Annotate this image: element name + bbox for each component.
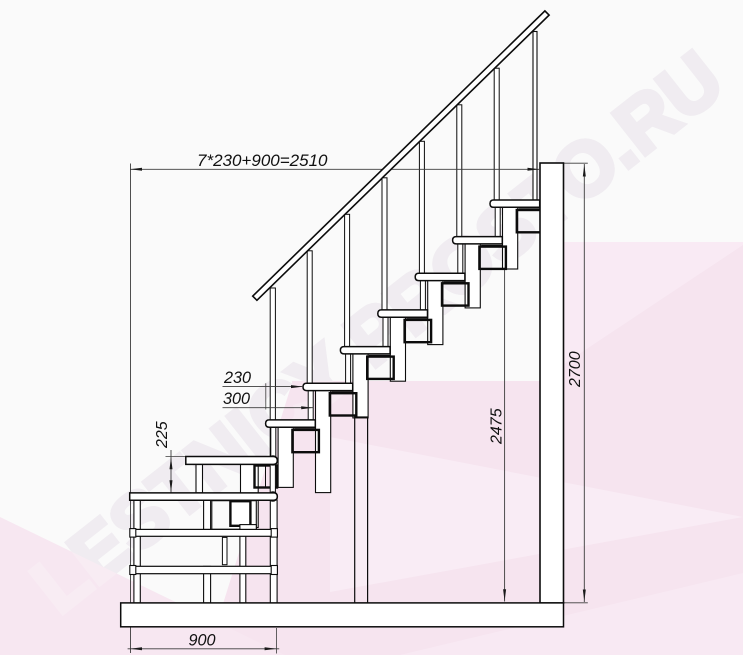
svg-text:300: 300 [223,390,250,408]
svg-text:230: 230 [223,369,251,387]
svg-text:2700: 2700 [567,351,584,388]
svg-text:2475: 2475 [489,408,506,445]
svg-text:225: 225 [154,421,171,449]
svg-text:900: 900 [189,632,216,650]
svg-text:7*230+900=2510: 7*230+900=2510 [197,151,328,170]
